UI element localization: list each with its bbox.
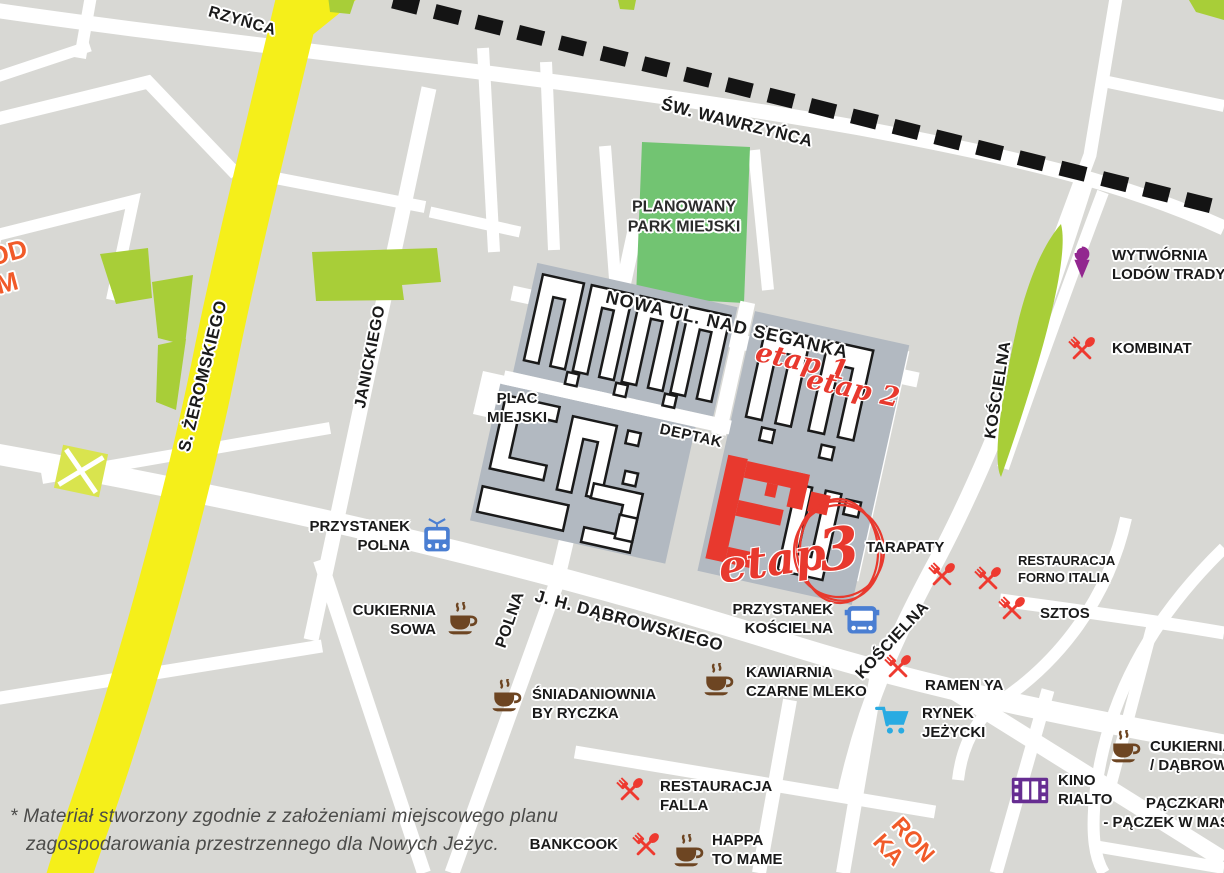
utensils-icon: [612, 773, 648, 814]
poi-label-wytwornia-lodow: WYTWÓRNIALODÓW TRADYC: [1112, 246, 1224, 284]
footnote: * Materiał stworzony zgodnie z założenia…: [10, 803, 558, 859]
utensils-icon: [880, 650, 916, 691]
transit-label-przystanek-koscielna: PRZYSTANEKKOŚCIELNA: [693, 600, 833, 638]
coffee-icon: [700, 663, 736, 704]
utensils-icon: [628, 828, 664, 869]
poi-label-czarne-mleko: KAWIARNIACZARNE MLEKO: [746, 663, 867, 701]
bus-icon: [842, 598, 882, 643]
poi-label-tarapaty: TARAPATY: [866, 538, 944, 557]
poi-label-happa-to-mame: HAPPATO MAME: [712, 831, 783, 869]
poi-label-kombinat: KOMBINAT: [1112, 339, 1192, 358]
utensils-icon: [1064, 332, 1100, 373]
utensils-icon: [970, 562, 1006, 603]
utensils-icon: [924, 558, 960, 599]
poi-label-paczkarnia: PĄCZKARN- PĄCZEK W MAŚ: [1100, 794, 1224, 832]
poi-label-falla: RESTAURACJAFALLA: [660, 777, 772, 815]
poi-label-forno-italia: RESTAURACJAFORNO ITALIA: [1018, 553, 1115, 586]
plac-miejski-label: PLACMIEJSKI: [487, 389, 547, 427]
map-canvas: ŚW. WAWRZYŃCA RZYŃCA S. ŻEROMSKIEGO JANI…: [0, 0, 1224, 873]
film-strip-icon: [1010, 775, 1050, 811]
crosshatch-symbol: [54, 445, 108, 498]
poi-label-sztos: SZTOS: [1040, 604, 1090, 623]
poi-label-sniadaniownia: ŚNIADANIOWNIABY RYCZKA: [532, 685, 656, 723]
poi-label-cukiernia-sowa: CUKIERNIASOWA: [300, 601, 436, 639]
poi-label-ramen-ya: RAMEN YA: [925, 676, 1003, 695]
coffee-icon: [670, 834, 706, 873]
coffee-icon: [444, 602, 480, 643]
tram-icon: [417, 515, 457, 560]
coffee-icon: [1107, 730, 1143, 771]
poi-label-rynek-jezycki: RYNEKJEŻYCKI: [922, 704, 985, 742]
park-label: PLANOWANYPARK MIEJSKI: [628, 198, 741, 239]
poi-label-cukiernia-dabrow: CUKIERNIA/ DĄBROW: [1150, 737, 1224, 775]
ice-cream-icon: [1064, 244, 1100, 285]
shopping-cart-icon: [874, 702, 914, 747]
transit-label-przystanek-polna: PRZYSTANEKPOLNA: [270, 517, 410, 555]
coffee-icon: [488, 679, 524, 720]
